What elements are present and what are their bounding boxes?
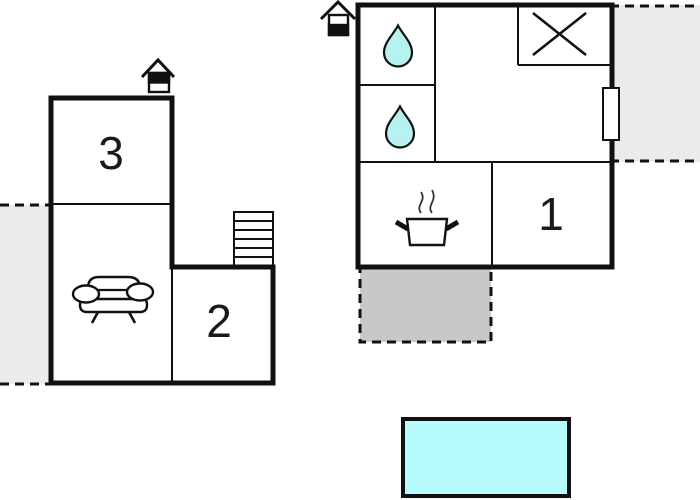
stairs-icon [234,212,273,267]
room-label-3: 3 [98,127,124,179]
floor-plan-canvas: 3 2 [0,0,700,500]
entrance-icon-left [142,60,174,92]
room-label-1: 1 [538,188,564,240]
door-opening [603,88,619,140]
room-label-2: 2 [206,295,232,347]
swimming-pool [403,419,569,496]
patio-right [610,5,700,162]
terrace [360,268,491,342]
patio-left-area [0,205,51,384]
patio-left [0,205,54,384]
building-right: 1 [321,2,619,267]
patio-right-area [612,5,700,162]
pot-body [407,219,447,245]
entrance-icon-right [321,2,355,35]
floor-plan-drawing: 3 2 [0,0,700,500]
terrace-area [360,268,491,342]
